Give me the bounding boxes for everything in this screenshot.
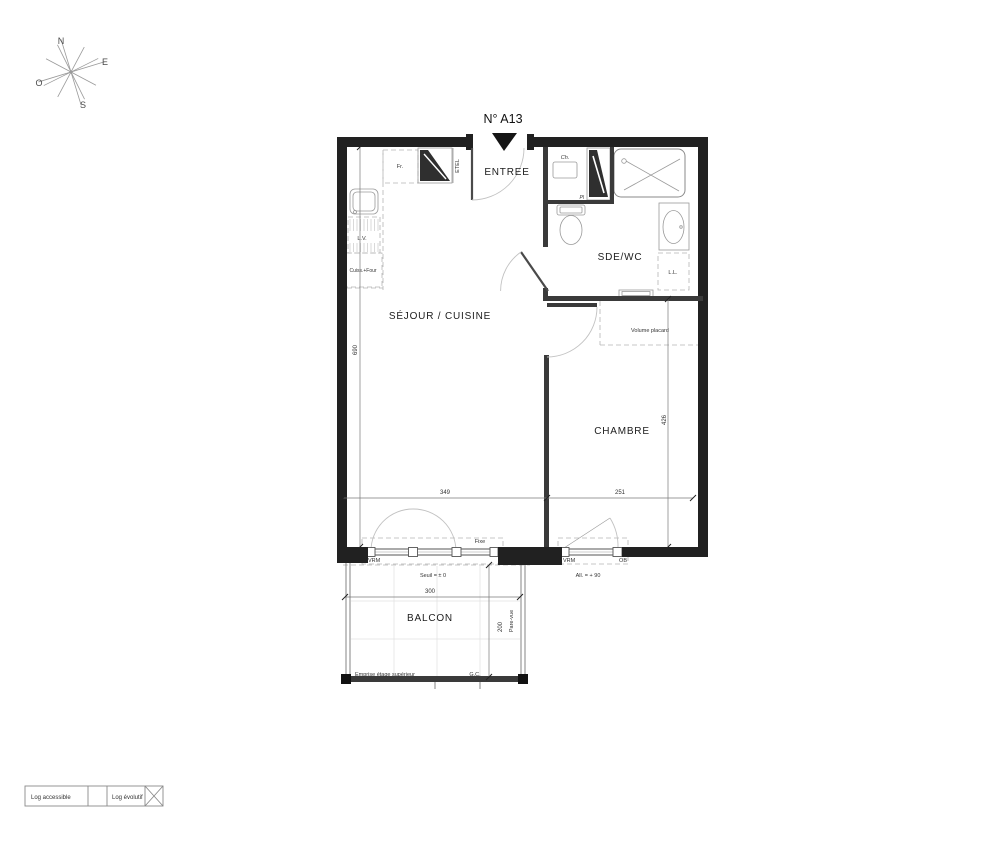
- dim-sejour-height: 690: [353, 344, 359, 355]
- chambre-window-vrm-label: VRM: [563, 558, 576, 564]
- water-heater-icon: Ch.: [553, 155, 577, 178]
- seuil-label: Seuil = ± 0: [420, 573, 446, 579]
- etel-label: ETEL: [455, 159, 461, 173]
- compass-rose: N E O S: [29, 29, 116, 115]
- floor-plan-page: N E O S N° A13 BALCON Emprise étage supé…: [0, 0, 1000, 857]
- apartment-number-label: N° A13: [483, 112, 522, 126]
- radiator-icon: [619, 290, 653, 297]
- sde-wc-label: SDE/WC: [598, 252, 643, 263]
- washbasin-icon: [659, 203, 689, 250]
- fridge-label: Fr.: [397, 164, 404, 170]
- shower-icon: [614, 149, 685, 197]
- entree-label: ENTREE: [484, 167, 529, 178]
- water-heater-label: Ch.: [561, 155, 570, 161]
- pare-vue-label: Pare-vue: [509, 610, 515, 632]
- washing-machine-label: L.L.: [668, 270, 678, 276]
- gc-label: G.C.: [469, 672, 481, 678]
- dim-balcon-depth: 200: [498, 621, 504, 632]
- etel-closet: ETEL: [418, 148, 461, 183]
- dishwasher-zone: L.V.: [348, 217, 380, 253]
- cooker-zone: Cuiss.+Four: [346, 253, 382, 287]
- dim-chambre-width: 251: [615, 490, 626, 496]
- legend: Log accessible Log évolutif: [25, 786, 163, 806]
- dim-sejour-width: 349: [440, 490, 451, 496]
- chambre-door: [547, 303, 597, 357]
- emprise-label: Emprise étage supérieur: [355, 672, 415, 678]
- room-labels: ENTREE SDE/WC SÉJOUR / CUISINE CHAMBRE: [389, 167, 650, 437]
- duct-shaft-icon: Pl: [580, 148, 610, 201]
- toilet-icon: [557, 205, 585, 245]
- balcony-label: BALCON: [407, 613, 453, 624]
- volume-placard-zone: Volume placard: [600, 301, 698, 345]
- dishwasher-label: L.V.: [357, 236, 367, 242]
- compass-west-label: O: [35, 78, 42, 88]
- washing-machine-zone: L.L.: [658, 253, 689, 290]
- dim-balcon-width: 300: [425, 589, 436, 595]
- sde-wc-fixtures: Ch. Pl L.L.: [553, 148, 689, 297]
- compass-south-label: S: [80, 100, 86, 110]
- sejour-window-fixe-label: Fixe: [475, 539, 485, 545]
- kitchen-area: Fr. L.V. Cuiss.+Four: [346, 150, 418, 290]
- chambre-label: CHAMBRE: [594, 426, 650, 437]
- chambre-allege-label: All. = + 90: [576, 573, 601, 579]
- legend-accessible-label: Log accessible: [31, 795, 71, 801]
- outer-walls: [337, 134, 708, 565]
- dimensions: 690 349 251 426 300 200: [340, 144, 696, 680]
- compass-north-label: N: [58, 36, 65, 46]
- sejour-cuisine-label: SÉJOUR / CUISINE: [389, 309, 491, 322]
- sde-door: [501, 252, 548, 291]
- dim-chambre-height: 426: [662, 414, 668, 425]
- entrance-marker-icon: [492, 133, 517, 151]
- title-block: N° A13: [483, 112, 522, 151]
- sejour-window-vrm-label: VRM: [368, 558, 381, 564]
- chambre-window: VRM OB All. = + 90: [558, 518, 628, 579]
- sink-icon: [350, 189, 378, 214]
- legend-evolutif-label: Log évolutif: [112, 795, 143, 801]
- log-evolutif-symbol-icon: [145, 786, 163, 806]
- chambre-window-ob-label: OB: [619, 558, 627, 564]
- sejour-bay-window: Fixe VRM: [362, 509, 503, 564]
- compass-east-label: E: [102, 57, 108, 67]
- cooker-label: Cuiss.+Four: [349, 268, 376, 274]
- volume-placard-label: Volume placard: [631, 328, 669, 334]
- floor-plan-canvas: N E O S N° A13 BALCON Emprise étage supé…: [0, 0, 1000, 857]
